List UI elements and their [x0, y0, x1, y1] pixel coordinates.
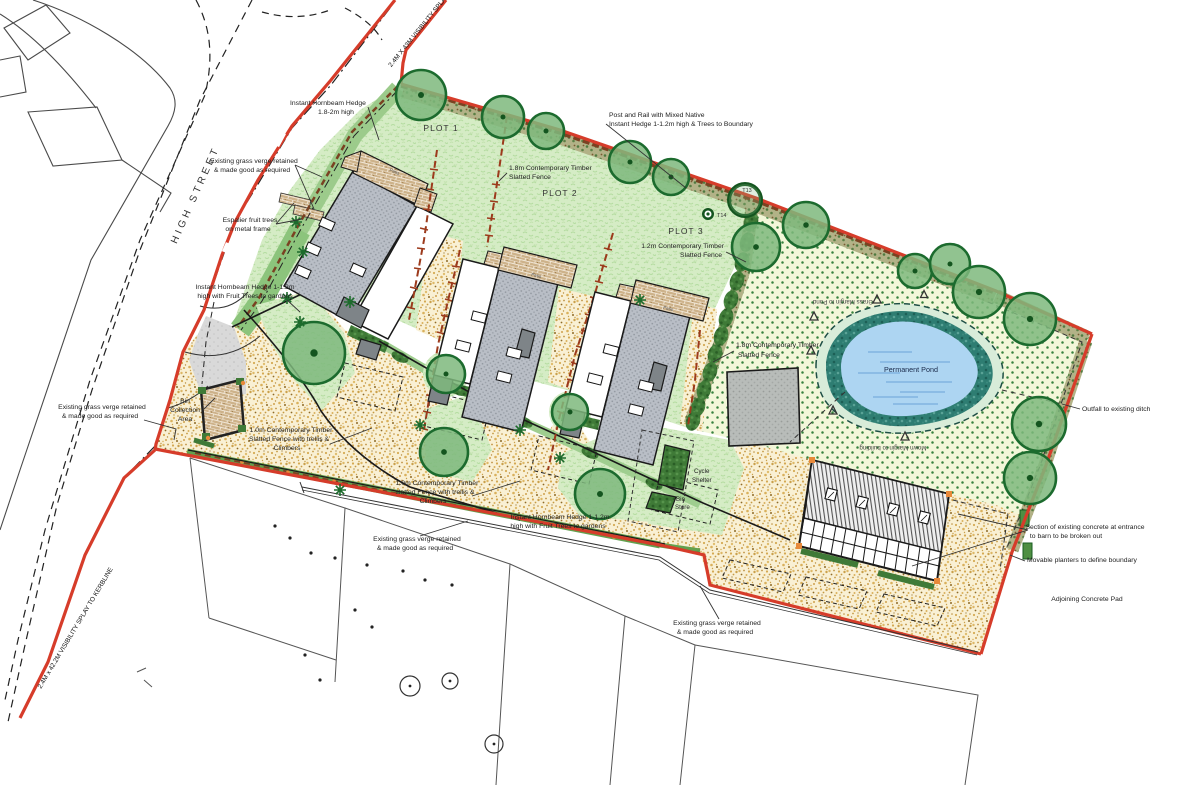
svg-text:to barn to be broken out: to barn to be broken out [1030, 533, 1102, 540]
svg-text:Slatted Fence: Slatted Fence [680, 252, 722, 259]
svg-text:Bin: Bin [180, 398, 190, 405]
svg-text:Climbers: Climbers [274, 445, 301, 452]
svg-text:1.2m Contemporary Timber: 1.2m Contemporary Timber [641, 243, 724, 250]
svg-text:Section of existing concrete a: Section of existing concrete at entrance [1025, 524, 1144, 531]
svg-text:1.8-2m high: 1.8-2m high [318, 109, 354, 116]
svg-text:Collection: Collection [170, 407, 200, 414]
svg-text:& made good as required: & made good as required [62, 413, 139, 420]
svg-text:Grass Margin to Pond: Grass Margin to Pond [812, 298, 873, 305]
svg-text:PLOT 3: PLOT 3 [668, 226, 703, 236]
svg-text:1.8m Contemporary Timber: 1.8m Contemporary Timber [736, 342, 819, 349]
svg-text:Existing grass verge retained: Existing grass verge retained [58, 404, 146, 411]
svg-text:Post and Rail with Mixed Nativ: Post and Rail with Mixed Native [609, 112, 705, 119]
svg-text:Existing grass verge retained: Existing grass verge retained [210, 158, 298, 165]
svg-text:Outfall to existing ditch: Outfall to existing ditch [1082, 406, 1151, 413]
svg-text:Bin: Bin [676, 496, 686, 503]
svg-text:PLOT 1: PLOT 1 [423, 123, 458, 133]
svg-text:& made good as required: & made good as required [214, 167, 291, 174]
svg-text:Area: Area [178, 416, 193, 423]
svg-text:Espalier fruit trees: Espalier fruit trees [223, 217, 278, 224]
svg-text:Climbers: Climbers [420, 498, 447, 505]
svg-text:1.0m Contemporary Timber: 1.0m Contemporary Timber [396, 480, 479, 487]
svg-text:1.8m Contemporary Timber: 1.8m Contemporary Timber [509, 165, 592, 172]
svg-text:Cycle: Cycle [694, 468, 710, 475]
svg-text:on metal frame: on metal frame [225, 226, 271, 233]
svg-text:& made good as required: & made good as required [377, 545, 454, 552]
svg-text:high with Fruit Trees to garde: high with Fruit Trees to gardens [510, 523, 606, 530]
svg-text:Instant Hornbeam Hedge 1-1.2m: Instant Hornbeam Hedge 1-1.2m [196, 284, 295, 291]
svg-text:Instant Hornbeam Hedge: Instant Hornbeam Hedge [290, 100, 366, 107]
svg-text:Slatted Fence: Slatted Fence [738, 352, 780, 359]
svg-text:PLOT 2: PLOT 2 [542, 188, 577, 198]
svg-text:high with Fruit Trees to garde: high with Fruit Trees to gardens [197, 293, 293, 300]
svg-text:Permanent Pond: Permanent Pond [884, 365, 938, 374]
svg-text:Movable planters to define bou: Movable planters to define boundary [1027, 557, 1138, 564]
svg-text:1.0m Contemporary Timber: 1.0m Contemporary Timber [250, 427, 333, 434]
svg-text:Store: Store [675, 504, 690, 511]
svg-text:Slatted Fence with trellis &: Slatted Fence with trellis & [249, 436, 330, 443]
svg-text:& made good as required: & made good as required [677, 629, 754, 636]
svg-text:Mown Margin to building: Mown Margin to building [859, 444, 927, 451]
svg-text:Instant Hornbeam Hedge 1-1.2m: Instant Hornbeam Hedge 1-1.2m [511, 514, 610, 521]
svg-text:Instant Hedge 1-1.2m high & Tr: Instant Hedge 1-1.2m high & Trees to Bou… [609, 121, 754, 128]
svg-text:T14: T14 [717, 213, 726, 219]
svg-text:Shelter: Shelter [692, 477, 712, 484]
svg-text:Existing grass verge retained: Existing grass verge retained [373, 536, 461, 543]
svg-text:T13: T13 [742, 188, 751, 194]
svg-text:Slatted Fence: Slatted Fence [509, 174, 551, 181]
svg-text:Adjoining Concrete Pad: Adjoining Concrete Pad [1051, 596, 1123, 603]
svg-text:slatted Fence with trellis &: slatted Fence with trellis & [396, 489, 475, 496]
svg-text:Existing grass verge retained: Existing grass verge retained [673, 620, 761, 627]
